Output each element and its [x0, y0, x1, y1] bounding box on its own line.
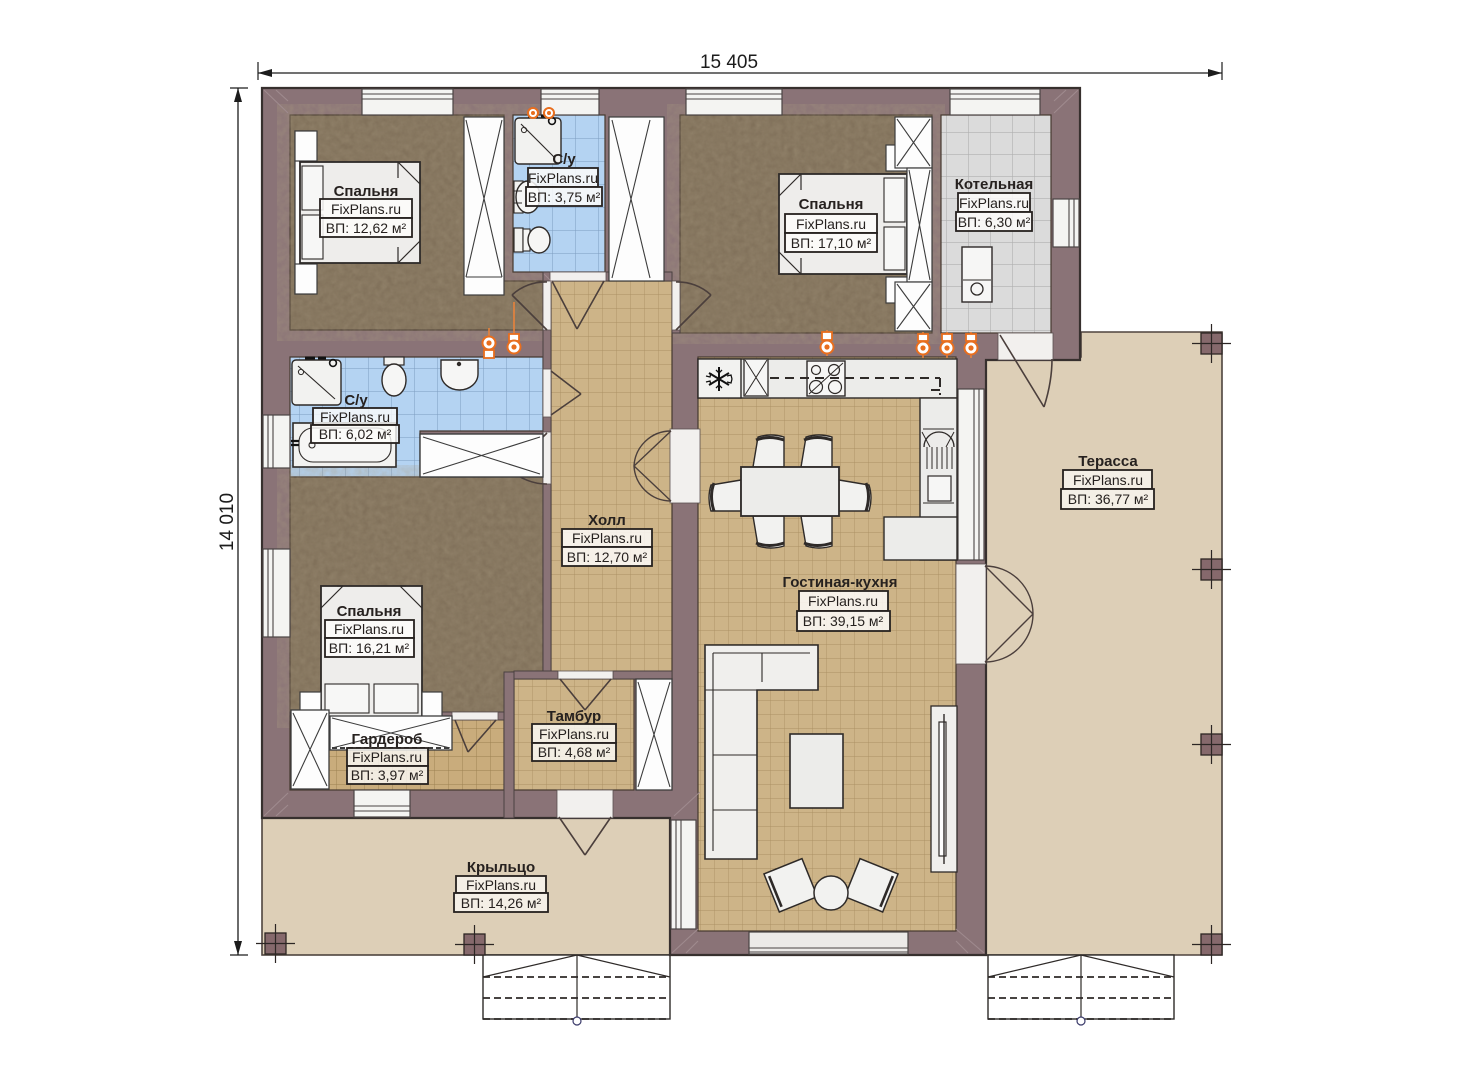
svg-text:Гардероб: Гардероб: [352, 731, 423, 748]
svg-text:15 405: 15 405: [700, 52, 758, 73]
svg-text:ВП: 3,97 м²: ВП: 3,97 м²: [351, 767, 424, 783]
svg-text:14 010: 14 010: [217, 493, 238, 551]
svg-text:ВП: 16,21 м²: ВП: 16,21 м²: [329, 640, 410, 656]
svg-text:FixPlans.ru: FixPlans.ru: [959, 195, 1029, 211]
svg-text:Терасса: Терасса: [1078, 453, 1138, 470]
svg-text:Холл: Холл: [588, 512, 626, 529]
svg-text:Спальня: Спальня: [334, 183, 399, 200]
svg-text:FixPlans.ru: FixPlans.ru: [466, 877, 536, 893]
svg-text:FixPlans.ru: FixPlans.ru: [796, 216, 866, 232]
svg-text:FixPlans.ru: FixPlans.ru: [808, 593, 878, 609]
svg-text:ВП: 12,70 м²: ВП: 12,70 м²: [567, 549, 648, 565]
svg-text:FixPlans.ru: FixPlans.ru: [320, 409, 390, 425]
svg-text:FixPlans.ru: FixPlans.ru: [572, 530, 642, 546]
svg-text:Спальня: Спальня: [337, 603, 402, 620]
svg-text:Спальня: Спальня: [799, 196, 864, 213]
svg-text:ВП: 3,75 м²: ВП: 3,75 м²: [528, 189, 601, 205]
svg-text:С/у: С/у: [552, 151, 576, 168]
svg-text:ВП: 12,62 м²: ВП: 12,62 м²: [326, 220, 407, 236]
svg-text:Тамбур: Тамбур: [547, 708, 601, 725]
svg-text:ВП: 39,15 м²: ВП: 39,15 м²: [803, 613, 884, 629]
svg-text:Крыльцо: Крыльцо: [467, 859, 535, 876]
svg-text:ВП: 6,30 м²: ВП: 6,30 м²: [958, 214, 1031, 230]
svg-text:ВП: 36,77 м²: ВП: 36,77 м²: [1068, 491, 1149, 507]
svg-text:ВП: 4,68 м²: ВП: 4,68 м²: [538, 744, 611, 760]
svg-text:ВП: 6,02 м²: ВП: 6,02 м²: [319, 426, 392, 442]
svg-text:FixPlans.ru: FixPlans.ru: [331, 201, 401, 217]
svg-text:FixPlans.ru: FixPlans.ru: [539, 726, 609, 742]
svg-text:FixPlans.ru: FixPlans.ru: [528, 170, 598, 186]
svg-text:FixPlans.ru: FixPlans.ru: [352, 749, 422, 765]
svg-text:ВП: 14,26 м²: ВП: 14,26 м²: [461, 895, 542, 911]
svg-text:Котельная: Котельная: [955, 176, 1034, 193]
svg-text:Гостиная-кухня: Гостиная-кухня: [783, 574, 898, 591]
svg-text:ВП: 17,10 м²: ВП: 17,10 м²: [791, 235, 872, 251]
svg-text:FixPlans.ru: FixPlans.ru: [334, 621, 404, 637]
svg-text:С/у: С/у: [344, 392, 368, 409]
svg-text:FixPlans.ru: FixPlans.ru: [1073, 472, 1143, 488]
